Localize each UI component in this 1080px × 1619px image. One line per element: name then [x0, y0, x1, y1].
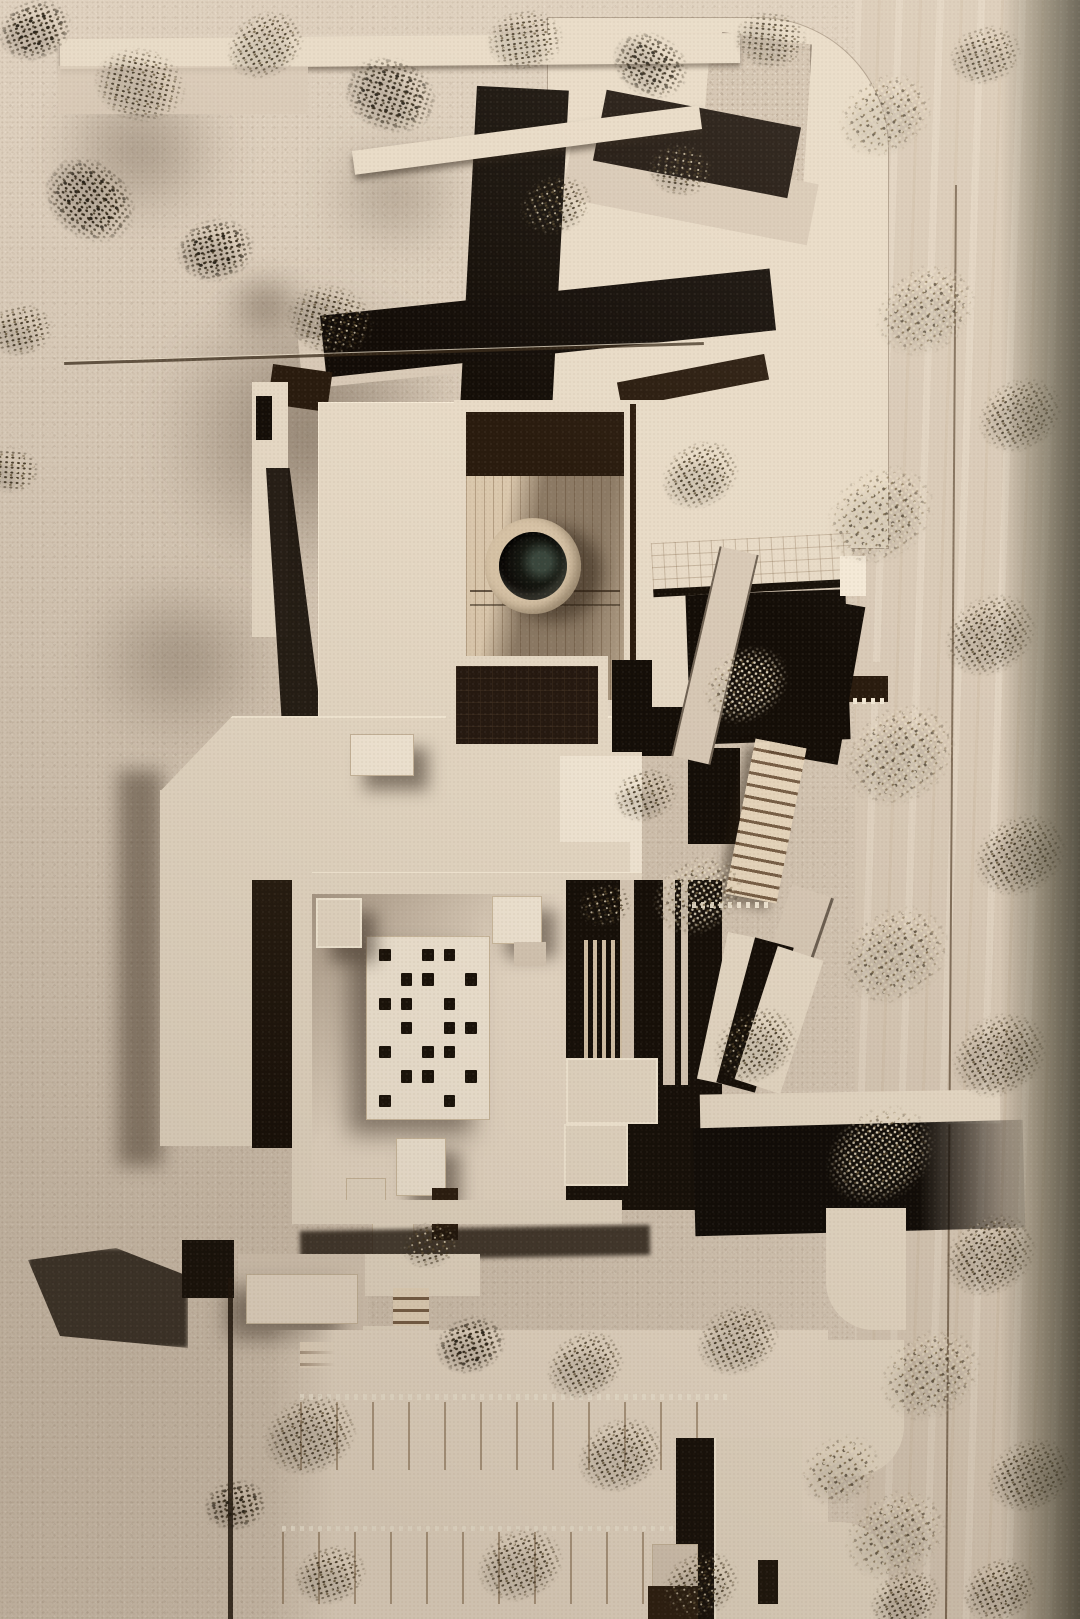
- light-gradient: [0, 0, 1080, 1619]
- model-photo: [0, 0, 1080, 1619]
